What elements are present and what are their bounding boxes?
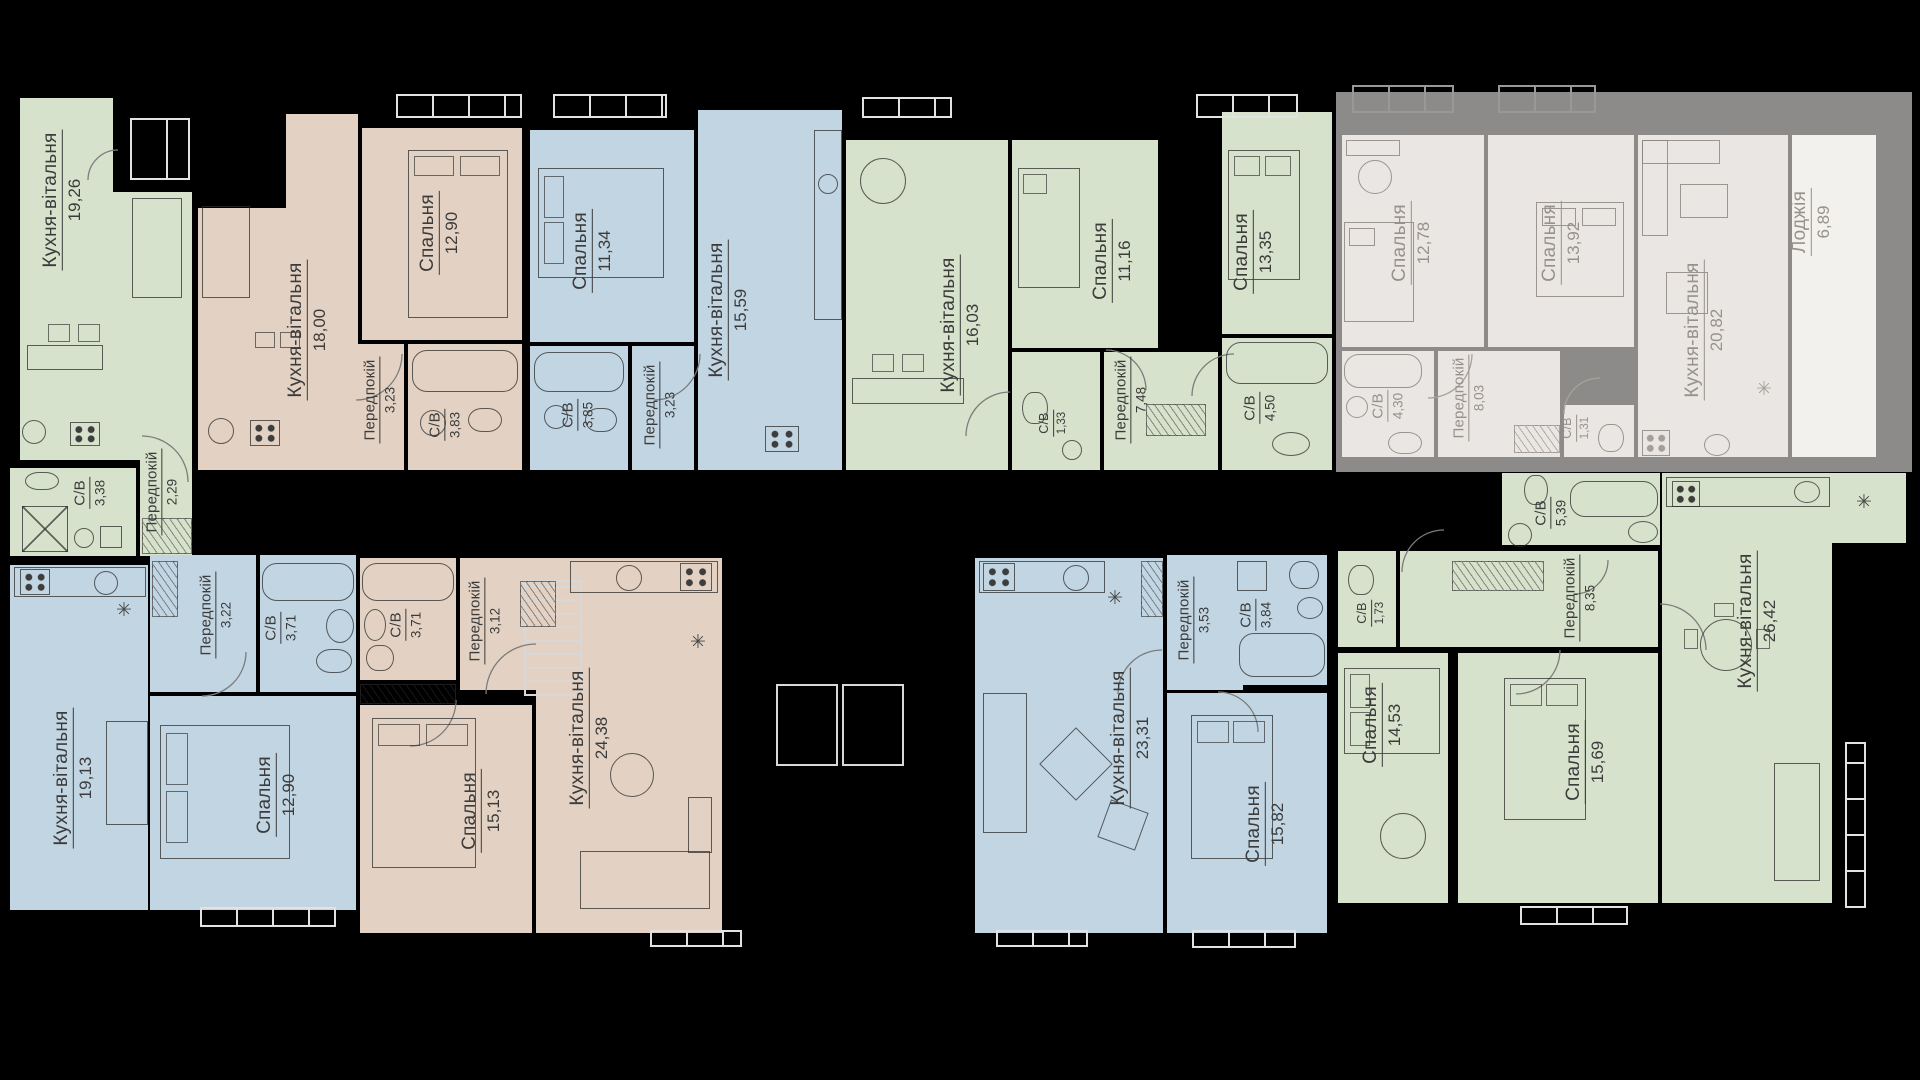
fixture-icon: ✳	[1756, 380, 1772, 399]
sink-icon	[1628, 521, 1658, 543]
balcony-railing	[1192, 930, 1296, 948]
room-label: Спальня14,53	[1361, 683, 1405, 767]
shower-icon	[22, 506, 68, 552]
stove-icon	[765, 426, 799, 452]
sofa-icon	[106, 721, 148, 825]
sink-icon	[1346, 396, 1368, 418]
room-label: Передпокій2,29	[144, 449, 179, 536]
washer-icon	[1237, 561, 1267, 591]
bathtub-icon	[412, 350, 518, 392]
wardrobe-icon	[1452, 561, 1544, 591]
toilet-icon	[316, 649, 352, 673]
sink-icon	[616, 565, 642, 591]
sink-icon	[364, 609, 386, 641]
elevator-shaft	[776, 684, 838, 766]
room-label: Передпокій3,53	[1176, 577, 1211, 664]
bathtub-icon	[362, 563, 454, 601]
room-label: Спальня11,16	[1091, 219, 1135, 303]
room-label: Кухня-вітальня18,00	[286, 259, 330, 400]
balcony-railing	[1845, 742, 1866, 908]
balcony-railing	[200, 907, 336, 927]
wardrobe-icon	[360, 684, 456, 704]
pillow-icon	[1265, 156, 1291, 176]
table-icon	[860, 158, 906, 204]
toilet-icon	[1598, 424, 1624, 452]
apartment-bottom-3[interactable]: ✳ Кухня-вітальня23,31 Передпокій3,53 С/В…	[975, 553, 1327, 933]
sink-icon	[74, 528, 94, 548]
balcony-railing	[862, 97, 952, 118]
pillow-icon	[166, 791, 188, 843]
room-label: Спальня15,69	[1564, 720, 1608, 804]
stove-icon	[983, 563, 1015, 591]
room-label: Кухня-вітальня23,31	[1109, 667, 1153, 808]
balcony-railing	[1498, 85, 1596, 113]
bathtub-icon	[1226, 342, 1328, 384]
pillow-icon	[426, 724, 468, 746]
sofa-icon	[1774, 763, 1820, 881]
room-label: Кухня-вітальня15,59	[707, 239, 751, 380]
sink-icon	[22, 420, 46, 444]
sofa-icon	[580, 851, 710, 909]
sink-icon	[1508, 523, 1532, 547]
counter-icon	[814, 130, 842, 320]
room-label: Кухня-вітальня20,82	[1683, 259, 1727, 400]
floor-plan: Кухня-вітальня19,26 С/В3,38 Передпокій2,…	[0, 0, 1920, 1080]
apartment-top-3[interactable]: Спальня11,34 С/В3,85 Передпокій3,23 Кухн…	[530, 110, 842, 470]
chair-icon	[902, 354, 924, 372]
sofa-icon	[688, 797, 712, 853]
sink-icon	[1704, 434, 1730, 456]
sink-icon	[818, 174, 838, 194]
room-label: С/В3,85	[560, 399, 595, 431]
room-label: Кухня-вітальня24,38	[568, 667, 612, 808]
room-label: С/В5,39	[1533, 497, 1568, 529]
apartment-top-5[interactable]: ✳ Спальня12,78 Спальня13,92 Кухня-віталь…	[1336, 92, 1912, 472]
balcony-railing	[650, 930, 742, 947]
sofa-icon	[202, 206, 250, 298]
balcony-railing	[1520, 906, 1628, 925]
room-label: Спальня13,92	[1540, 201, 1584, 285]
balcony-railing	[996, 930, 1088, 947]
sofa-icon	[983, 693, 1027, 833]
sink-icon	[94, 571, 118, 595]
room-label: Спальня15,82	[1244, 782, 1288, 866]
balcony-railing	[1196, 94, 1298, 118]
sink-icon	[1297, 597, 1323, 619]
toilet-icon	[468, 408, 502, 432]
sink-icon	[326, 609, 354, 643]
pillow-icon	[460, 156, 500, 176]
sink-icon	[1063, 565, 1089, 591]
counter-icon	[27, 345, 103, 370]
apartment-bottom-4[interactable]: ✳ С/В5,39 Передпокій8,35 С/В1,73 Спальня…	[1336, 473, 1912, 905]
room-label: Кухня-вітальня16,03	[939, 254, 983, 395]
pillow-icon	[1197, 721, 1229, 743]
chair-icon	[1714, 603, 1734, 617]
stove-icon	[680, 563, 712, 591]
toilet-icon	[1348, 565, 1374, 595]
washer-icon	[100, 526, 122, 548]
room-label: Кухня-вітальня26,42	[1736, 550, 1780, 691]
pillow-icon	[1023, 174, 1047, 194]
bathtub-icon	[1344, 354, 1422, 388]
room-label: С/В4,30	[1370, 390, 1405, 422]
pillow-icon	[414, 156, 454, 176]
sofa-icon	[1642, 140, 1720, 164]
chair-icon	[48, 324, 70, 342]
room-loggia	[1792, 135, 1876, 457]
sink-icon	[1272, 432, 1310, 456]
pillow-icon	[1510, 684, 1542, 706]
toilet-icon	[1388, 432, 1422, 454]
facade-notch	[198, 114, 286, 208]
chair-icon	[255, 332, 275, 348]
wardrobe-icon	[152, 561, 178, 617]
room-label: С/В3,84	[1238, 599, 1273, 631]
room-label: Спальня11,34	[571, 209, 615, 293]
chair-icon	[1380, 813, 1426, 859]
fixture-icon: ✳	[690, 633, 706, 652]
room-label: Лоджія6,89	[1790, 188, 1834, 256]
pillow-icon	[544, 176, 564, 218]
stove-icon	[250, 420, 280, 446]
room-label: С/В3,71	[263, 612, 298, 644]
balcony-railing	[130, 118, 190, 180]
elevator-shaft	[842, 684, 904, 766]
room-label: Передпокій3,23	[642, 362, 677, 449]
room-label: С/В1,73	[1356, 599, 1386, 626]
bathtub-icon	[262, 563, 354, 601]
room-label: Спальня13,35	[1232, 210, 1276, 294]
balcony-railing	[396, 94, 522, 118]
pillow-icon	[1582, 208, 1616, 226]
room-label: Передпокій7,48	[1113, 357, 1148, 444]
room-label: С/В3,83	[427, 409, 462, 441]
room-label: Кухня-вітальня19,13	[52, 707, 96, 848]
chair-icon	[1358, 160, 1392, 194]
pillow-icon	[166, 733, 188, 785]
room-label: Спальня12,90	[255, 753, 299, 837]
stove-icon	[1642, 430, 1670, 456]
chair-icon	[78, 324, 100, 342]
room-label: С/В3,38	[72, 477, 107, 509]
wardrobe-icon	[1514, 425, 1560, 453]
room-label: Спальня15,13	[460, 769, 504, 853]
bathtub-icon	[534, 352, 624, 392]
fixture-icon: ✳	[116, 601, 132, 620]
sofa-icon	[132, 198, 182, 298]
sink-icon	[1062, 440, 1082, 460]
room-label: Спальня12,90	[418, 191, 462, 275]
pillow-icon	[1233, 721, 1265, 743]
chair-icon	[1684, 629, 1698, 649]
fixture-icon: ✳	[1856, 493, 1872, 512]
room-label: Передпокій3,22	[198, 572, 233, 659]
pillow-icon	[544, 222, 564, 264]
sink-icon	[1794, 481, 1820, 503]
table-icon	[610, 753, 654, 797]
apartment-bottom-2[interactable]: ✳ С/В3,71 Передпокій3,12 Спальня15,13 Ку…	[360, 553, 722, 933]
fixture-icon: ✳	[1107, 589, 1123, 608]
stove-icon	[70, 422, 100, 446]
toilet-icon	[1289, 561, 1319, 589]
pillow-icon	[378, 724, 420, 746]
toilet-icon	[25, 472, 59, 490]
pillow-icon	[1349, 228, 1375, 246]
room-label: С/В3,71	[388, 609, 423, 641]
wardrobe-icon	[1141, 561, 1163, 617]
sink-icon	[208, 418, 234, 444]
room-label: С/В1,31	[1561, 414, 1591, 441]
room-label: Спальня12,78	[1390, 201, 1434, 285]
toilet-icon	[366, 645, 394, 671]
room-label: С/В1,33	[1038, 409, 1068, 436]
apartment-bottom-1[interactable]: ✳ Кухня-вітальня19,13 Передпокій3,22 С/В…	[10, 553, 356, 925]
room-label: С/В4,50	[1242, 392, 1277, 424]
room-label: Передпокій8,35	[1562, 555, 1597, 642]
apartment-top-2[interactable]: Кухня-вітальня18,00 Спальня12,90 Передпо…	[198, 110, 522, 470]
pillow-icon	[1546, 684, 1578, 706]
room-label: Передпокій3,23	[362, 357, 397, 444]
stove-icon	[1672, 481, 1700, 507]
desk-icon	[1346, 140, 1400, 156]
table-icon	[1680, 184, 1728, 218]
stove-icon	[20, 569, 50, 595]
wardrobe-icon	[1146, 404, 1206, 436]
chair-icon	[872, 354, 894, 372]
room-label: Передпокій8,03	[1451, 355, 1486, 442]
bathtub-icon	[1570, 481, 1658, 517]
bathtub-icon	[1239, 633, 1325, 677]
balcony-railing	[1352, 85, 1454, 113]
pillow-icon	[1234, 156, 1260, 176]
room-label: Передпокій3,12	[467, 578, 502, 665]
apartment-top-4[interactable]: Кухня-вітальня16,03 Спальня11,16 С/В1,33…	[846, 110, 1332, 470]
wardrobe-icon	[520, 581, 556, 627]
room-label: Кухня-вітальня19,26	[41, 129, 85, 270]
balcony-railing	[553, 94, 667, 118]
